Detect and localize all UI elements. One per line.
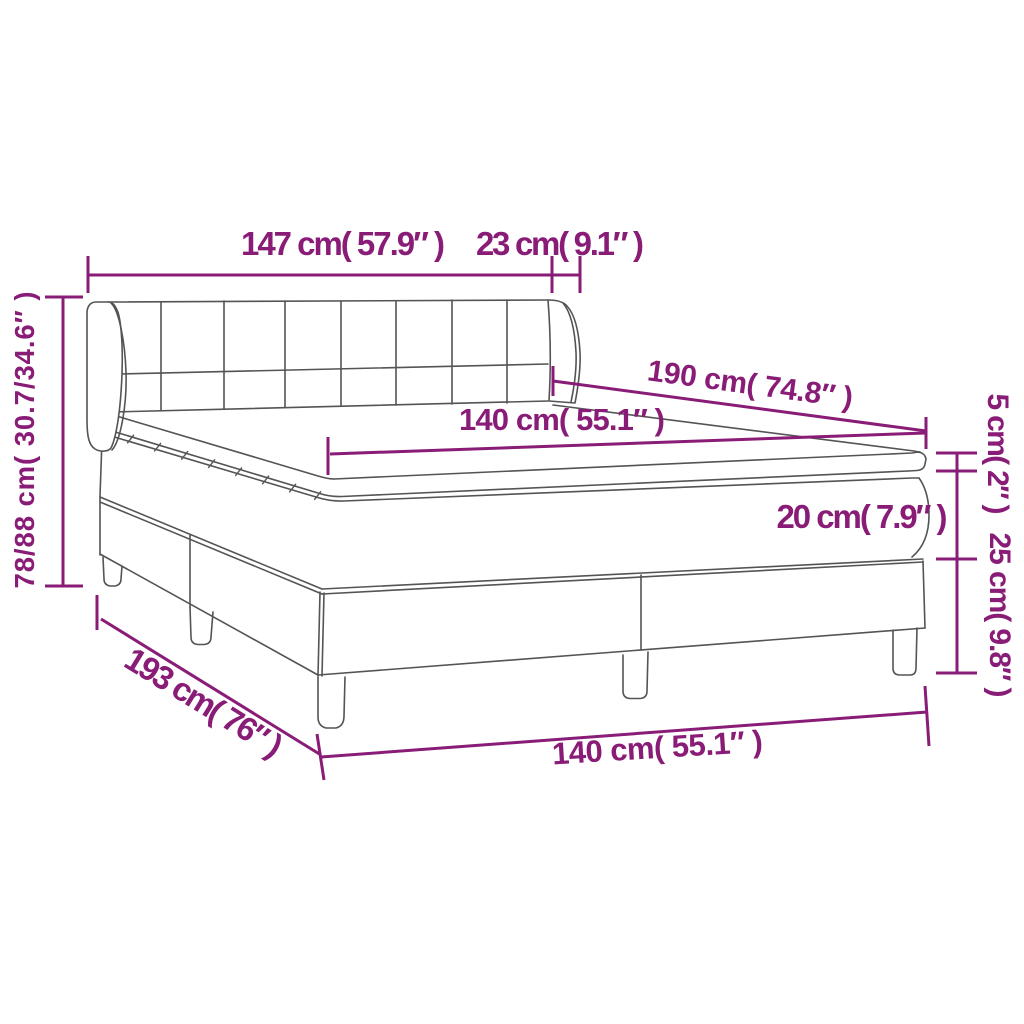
svg-text:78/88 cm( 30.7/34.6″ ): 78/88 cm( 30.7/34.6″ ): [9, 292, 40, 589]
svg-text:140 cm( 55.1″ ): 140 cm( 55.1″ ): [551, 724, 764, 772]
svg-text:23 cm( 9.1″ ): 23 cm( 9.1″ ): [476, 225, 644, 262]
svg-text:140 cm( 55.1″ ): 140 cm( 55.1″ ): [459, 402, 665, 437]
svg-text:193 cm( 76″ ): 193 cm( 76″ ): [118, 640, 289, 765]
svg-text:25 cm( 9.8″ ): 25 cm( 9.8″ ): [983, 533, 1016, 698]
svg-text:190 cm( 74.8″ ): 190 cm( 74.8″ ): [645, 354, 855, 414]
svg-text:5 cm( 2″ ): 5 cm( 2″ ): [981, 394, 1014, 515]
svg-text:147 cm( 57.9″ ): 147 cm( 57.9″ ): [241, 225, 445, 262]
svg-text:20 cm( 7.9″ ): 20 cm( 7.9″ ): [777, 498, 948, 535]
